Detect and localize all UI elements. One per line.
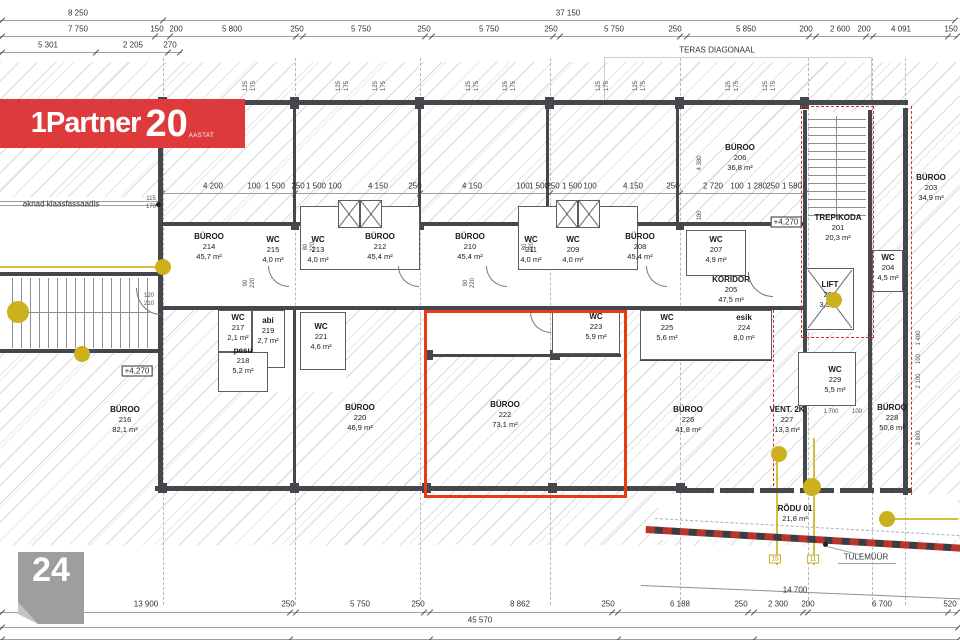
- room-number: 219: [257, 326, 278, 336]
- room-number: 226: [673, 415, 703, 425]
- marker-dot: [7, 301, 29, 323]
- dim-label: 250: [666, 182, 679, 191]
- room-name: WC: [705, 235, 726, 245]
- room-name: BÜROO: [625, 232, 655, 242]
- marker-tag: 11: [807, 555, 819, 564]
- room-number: 216: [110, 415, 140, 425]
- pillar: [676, 222, 684, 230]
- marker-dot: [74, 346, 90, 362]
- window-dim-label: 175: [604, 81, 610, 91]
- marker-dot: [155, 259, 171, 275]
- window-dim-label: 125: [633, 81, 639, 91]
- small-dim-label: 1 480: [916, 330, 922, 345]
- room-name: BÜROO: [916, 173, 946, 183]
- room-area: 8,0 m²: [733, 333, 754, 343]
- wall-right: [903, 108, 908, 495]
- office-divider: [293, 310, 296, 486]
- partner-logo: 1Partner 20 AASTAT: [0, 99, 245, 148]
- dim-line-top-row-1: [0, 20, 163, 21]
- room-label-211: WC2114,0 m²: [520, 235, 541, 265]
- dim-label: 1 280: [747, 182, 767, 191]
- room-name: LIFT: [819, 280, 840, 290]
- small-dim-label: 1 180: [697, 210, 703, 225]
- pillar: [158, 483, 167, 493]
- fire-zone-east: [911, 106, 912, 495]
- room-area: 4,0 m²: [262, 255, 283, 265]
- room-label-228: BÜROO22850,8 m²: [877, 403, 907, 433]
- wall-corridor-north: [162, 222, 805, 226]
- pillar: [291, 222, 299, 230]
- marker-dot: [803, 478, 821, 496]
- room-name: BÜROO: [110, 405, 140, 415]
- dim-label: 250: [668, 25, 681, 34]
- dim-label: 250: [734, 600, 747, 609]
- room-number: 208: [625, 242, 655, 252]
- window-dim-label: 175: [771, 81, 777, 91]
- dim-label: 1 500: [562, 182, 582, 191]
- room-area: 4,0 m²: [307, 255, 328, 265]
- dim-label: 5 750: [351, 25, 371, 34]
- annotation-label: TERAS DIAGONAAL: [679, 46, 755, 55]
- room-area: 21,8 m²: [778, 514, 813, 524]
- marker-dot: [771, 446, 787, 462]
- room-area: 45,7 m²: [194, 252, 224, 262]
- room-name: WC: [877, 253, 898, 263]
- room-area: 45,4 m²: [365, 252, 395, 262]
- dim-line-bottom-row-1: [0, 612, 958, 613]
- room-area: 45,4 m²: [455, 252, 485, 262]
- window-dim-label: 125: [336, 81, 342, 91]
- small-dim-label: 4 380: [697, 155, 703, 170]
- room-number: 224: [733, 323, 754, 333]
- window-dim-label: 125: [243, 81, 249, 91]
- annotation-label: +4,270: [771, 217, 802, 228]
- dim-label: 200: [857, 25, 870, 34]
- room-number: 225: [656, 323, 677, 333]
- dim-label: 7 750: [68, 25, 88, 34]
- room-area: 13,3 m²: [769, 425, 804, 435]
- office-divider: [418, 104, 421, 222]
- room-label-213: WC2134,0 m²: [307, 235, 328, 265]
- room-name: esik: [733, 313, 754, 323]
- dim-label: 45 570: [468, 616, 492, 625]
- room-label-218: pesu2185,2 m²: [232, 346, 253, 376]
- marker-dot: [879, 511, 895, 527]
- dim-label: 5 800: [222, 25, 242, 34]
- dim-label: 100: [583, 182, 596, 191]
- dim-label: 200: [801, 600, 814, 609]
- small-dim-label: 2 100: [916, 373, 922, 388]
- dim-label: 4 091: [891, 25, 911, 34]
- dim-label: 5 750: [479, 25, 499, 34]
- room-number: 221: [310, 332, 331, 342]
- dim-label: 250: [408, 182, 421, 191]
- room-name: WC: [656, 313, 677, 323]
- room-name: abi: [257, 316, 278, 326]
- dim-label: 250: [411, 600, 424, 609]
- room-area: 50,8 m²: [877, 423, 907, 433]
- page-number: 24: [32, 552, 70, 589]
- room-name: KORIDOR: [712, 275, 750, 285]
- room-label-205: KORIDOR20547,5 m²: [712, 275, 750, 305]
- dim-label: 2 600: [830, 25, 850, 34]
- small-dim-label: 210: [144, 301, 154, 307]
- room-name: WC: [262, 235, 283, 245]
- room-name: BÜROO: [365, 232, 395, 242]
- stairs-rail: [12, 312, 150, 313]
- highlighted-room-222: [424, 310, 627, 498]
- room-area: 34,9 m²: [916, 193, 946, 203]
- room-name: BÜROO: [725, 143, 755, 153]
- dim-label: 5 301: [38, 41, 58, 50]
- room-area: 4,5 m²: [877, 273, 898, 283]
- small-dim-label: 170: [146, 204, 156, 210]
- terrace-outline: [604, 57, 872, 101]
- room-area: 4,6 m²: [310, 342, 331, 352]
- window-dim-label: 175: [381, 81, 387, 91]
- dim-label: 1 500: [306, 182, 326, 191]
- room-label-209: WC2094,0 m²: [562, 235, 583, 265]
- stairs-annex: [12, 278, 150, 348]
- small-dim-label: 220: [250, 278, 256, 288]
- pillar: [290, 97, 299, 109]
- wall-top: [155, 100, 908, 105]
- window-dim-label: 175: [734, 81, 740, 91]
- window-dim-label: 175: [344, 81, 350, 91]
- room-name: WC: [227, 313, 248, 323]
- window-dim-label: 125: [763, 81, 769, 91]
- dim-label: 250: [766, 182, 779, 191]
- marker-tag: 15: [769, 555, 781, 564]
- dim-label: 4 150: [623, 182, 643, 191]
- dim-label: 1 580: [782, 182, 802, 191]
- small-dim-label: 115: [146, 196, 156, 202]
- room-name: WC: [562, 235, 583, 245]
- room-label-201: TREPIKODA20120,3 m²: [814, 213, 861, 243]
- room-number: 207: [705, 245, 726, 255]
- dim-label: 2 300: [768, 600, 788, 609]
- room-area: 41,8 m²: [673, 425, 703, 435]
- marker-line: [887, 518, 958, 520]
- room-number: 228: [877, 413, 907, 423]
- room-name: RÕDU 01: [778, 504, 813, 514]
- room-area: 4,0 m²: [520, 255, 541, 265]
- dim-label: 6 700: [872, 600, 892, 609]
- dim-label: 100: [247, 182, 260, 191]
- room-area: 4,0 m²: [562, 255, 583, 265]
- dim-label: 250: [546, 182, 559, 191]
- room-label-208: BÜROO20845,4 m²: [625, 232, 655, 262]
- room-label-229: WC2295,5 m²: [824, 365, 845, 395]
- room-number: 227: [769, 415, 804, 425]
- room-number: 214: [194, 242, 224, 252]
- room-number: 211: [520, 245, 541, 255]
- room-area: 47,5 m²: [712, 295, 750, 305]
- room-number: 203: [916, 183, 946, 193]
- dim-label: 250: [601, 600, 614, 609]
- room-name: BÜROO: [345, 403, 375, 413]
- marker-line: [813, 438, 815, 565]
- wall-balcony: [680, 488, 912, 493]
- room-name: BÜROO: [673, 405, 703, 415]
- room-label-210: BÜROO21045,4 m²: [455, 232, 485, 262]
- room-label-204: WC2044,5 m²: [877, 253, 898, 283]
- room-label-215: WC2154,0 m²: [262, 235, 283, 265]
- dim-label: 4 150: [368, 182, 388, 191]
- window-dim-label: 175: [641, 81, 647, 91]
- annotation-label: aknad klaasfassaadis: [23, 200, 100, 209]
- dim-label: 250: [417, 25, 430, 34]
- room-number: 213: [307, 245, 328, 255]
- pillar: [290, 483, 299, 493]
- room-label-219: abi2192,7 m²: [257, 316, 278, 346]
- room-label-214: BÜROO21445,7 m²: [194, 232, 224, 262]
- shaft-box: [360, 200, 382, 228]
- small-dim-label: 90: [463, 280, 469, 287]
- office-divider: [676, 104, 679, 222]
- room-label-203: BÜROO20334,9 m²: [916, 173, 946, 203]
- dim-label: 150: [150, 25, 163, 34]
- window-dim-label: 125: [503, 81, 509, 91]
- window-dim-label: 125: [726, 81, 732, 91]
- shaft-box: [556, 200, 578, 228]
- small-dim-label: 1 700: [823, 409, 838, 415]
- dim-label: 100: [516, 182, 529, 191]
- office-divider: [546, 104, 549, 222]
- pillar: [675, 97, 684, 109]
- dim-label: 8 862: [510, 600, 530, 609]
- pillar: [545, 97, 554, 109]
- dim-tick: [955, 636, 960, 640]
- dim-label: 250: [281, 600, 294, 609]
- dim-label: 37 150: [556, 9, 580, 18]
- dim-label: 520: [943, 600, 956, 609]
- room-name: BÜROO: [194, 232, 224, 242]
- window-dim-label: 175: [511, 81, 517, 91]
- dim-label: 2 205: [123, 41, 143, 50]
- dim-label: 5 750: [604, 25, 624, 34]
- room-number: 218: [232, 356, 253, 366]
- dim-label: 100: [328, 182, 341, 191]
- marker-line: [0, 266, 163, 268]
- room-number: 229: [824, 375, 845, 385]
- room-number: 215: [262, 245, 283, 255]
- pillar: [415, 97, 424, 109]
- logo-anniversary-number: 20: [145, 105, 187, 143]
- room-name: BÜROO: [877, 403, 907, 413]
- small-dim-label: 220: [470, 278, 476, 288]
- room-name: WC: [307, 235, 328, 245]
- marker-dot: [826, 292, 842, 308]
- room-label-220: BÜROO22046,9 m²: [345, 403, 375, 433]
- dim-line-interior-row: [162, 193, 805, 194]
- room-number: 217: [227, 323, 248, 333]
- annotation-label: TULEMÜÜR: [844, 553, 888, 562]
- room-number: 201: [814, 223, 861, 233]
- room-area: 5,2 m²: [232, 366, 253, 376]
- room-name: WC: [824, 365, 845, 375]
- room-area: 82,1 m²: [110, 425, 140, 435]
- room-name: TREPIKODA: [814, 213, 861, 223]
- logo-brand-text: 1Partner: [31, 107, 141, 140]
- window-dim-label: 125: [596, 81, 602, 91]
- room-label-212: BÜROO21245,4 m²: [365, 232, 395, 262]
- room-label-206: BÜROO20636,8 m²: [725, 143, 755, 173]
- leader-dot: [156, 202, 161, 207]
- room-name: WC: [310, 322, 331, 332]
- room-area: 5,6 m²: [656, 333, 677, 343]
- room-number: 209: [562, 245, 583, 255]
- dim-label: 4 150: [462, 182, 482, 191]
- dim-label: 100: [730, 182, 743, 191]
- small-dim-label: 100: [916, 354, 922, 364]
- small-dim-label: 120: [144, 293, 154, 299]
- window-dim-label: 125: [466, 81, 472, 91]
- annotation-label: 14 700: [783, 586, 807, 595]
- room-number: 204: [877, 263, 898, 273]
- dim-label: 8 250: [68, 9, 88, 18]
- room-number: 206: [725, 153, 755, 163]
- dim-label: 200: [169, 25, 182, 34]
- dim-label: 150: [944, 25, 957, 34]
- room-label-217: WC2172,1 m²: [227, 313, 248, 343]
- room-area: 45,4 m²: [625, 252, 655, 262]
- room-name: WC: [520, 235, 541, 245]
- dim-label: 250: [291, 182, 304, 191]
- room-label-216: BÜROO21682,1 m²: [110, 405, 140, 435]
- logo-anniversary-sub: AASTAT: [189, 133, 214, 139]
- room-area: 2,7 m²: [257, 336, 278, 346]
- office-divider: [293, 104, 296, 222]
- room-area: 46,9 m²: [345, 423, 375, 433]
- window-dim-label: 175: [474, 81, 480, 91]
- room-area: 20,3 m²: [814, 233, 861, 243]
- pillar: [676, 483, 685, 493]
- dim-line-top-row-3: [0, 52, 182, 53]
- room-area: 5,5 m²: [824, 385, 845, 395]
- dim-label: 5 850: [736, 25, 756, 34]
- room-number: 210: [455, 242, 485, 252]
- dim-label: 13 900: [134, 600, 158, 609]
- room-number: 212: [365, 242, 395, 252]
- room-area: 2,1 m²: [227, 333, 248, 343]
- room-label-226: BÜROO22641,8 m²: [673, 405, 703, 435]
- room-name: VENT. 2K: [769, 405, 804, 415]
- dim-label: 5 750: [350, 600, 370, 609]
- room-label-224: esik2248,0 m²: [733, 313, 754, 343]
- dim-label: 2 720: [703, 182, 723, 191]
- room-number: 220: [345, 413, 375, 423]
- room-label-221: WC2214,6 m²: [310, 322, 331, 352]
- annotation-label: +4,270: [122, 366, 153, 377]
- small-dim-label: 3 800: [916, 430, 922, 445]
- dim-label: 250: [544, 25, 557, 34]
- small-dim-label: 90: [243, 280, 249, 287]
- dim-label: 4 200: [203, 182, 223, 191]
- tulemuur-underline: [838, 563, 896, 564]
- shaft-box: [338, 200, 360, 228]
- room-name: pesu: [232, 346, 253, 356]
- floor-plan-sheet: 1Partner 20 AASTAT 24 8 25037 1507 75015…: [0, 0, 960, 640]
- room-label-207: WC2074,9 m²: [705, 235, 726, 265]
- room-label-227: VENT. 2K22713,3 m²: [769, 405, 804, 435]
- room-number: 205: [712, 285, 750, 295]
- dim-label: 250: [290, 25, 303, 34]
- dim-line-top-row-1: [163, 20, 955, 21]
- dim-label: 6 188: [670, 600, 690, 609]
- room-label-225: WC2255,6 m²: [656, 313, 677, 343]
- window-dim-label: 175: [251, 81, 257, 91]
- small-dim-label: 100: [852, 409, 862, 415]
- shaft-box: [578, 200, 600, 228]
- dim-label: 270: [163, 41, 176, 50]
- room-label-r-du-01: RÕDU 0121,8 m²: [778, 504, 813, 524]
- window-dim-label: 125: [373, 81, 379, 91]
- room-name: BÜROO: [455, 232, 485, 242]
- dim-line-bottom-row-2: [0, 627, 958, 628]
- wall-annex-north: [0, 272, 162, 276]
- dim-label: 200: [799, 25, 812, 34]
- room-area: 4,9 m²: [705, 255, 726, 265]
- room-area: 36,8 m²: [725, 163, 755, 173]
- dim-label: 1 500: [265, 182, 285, 191]
